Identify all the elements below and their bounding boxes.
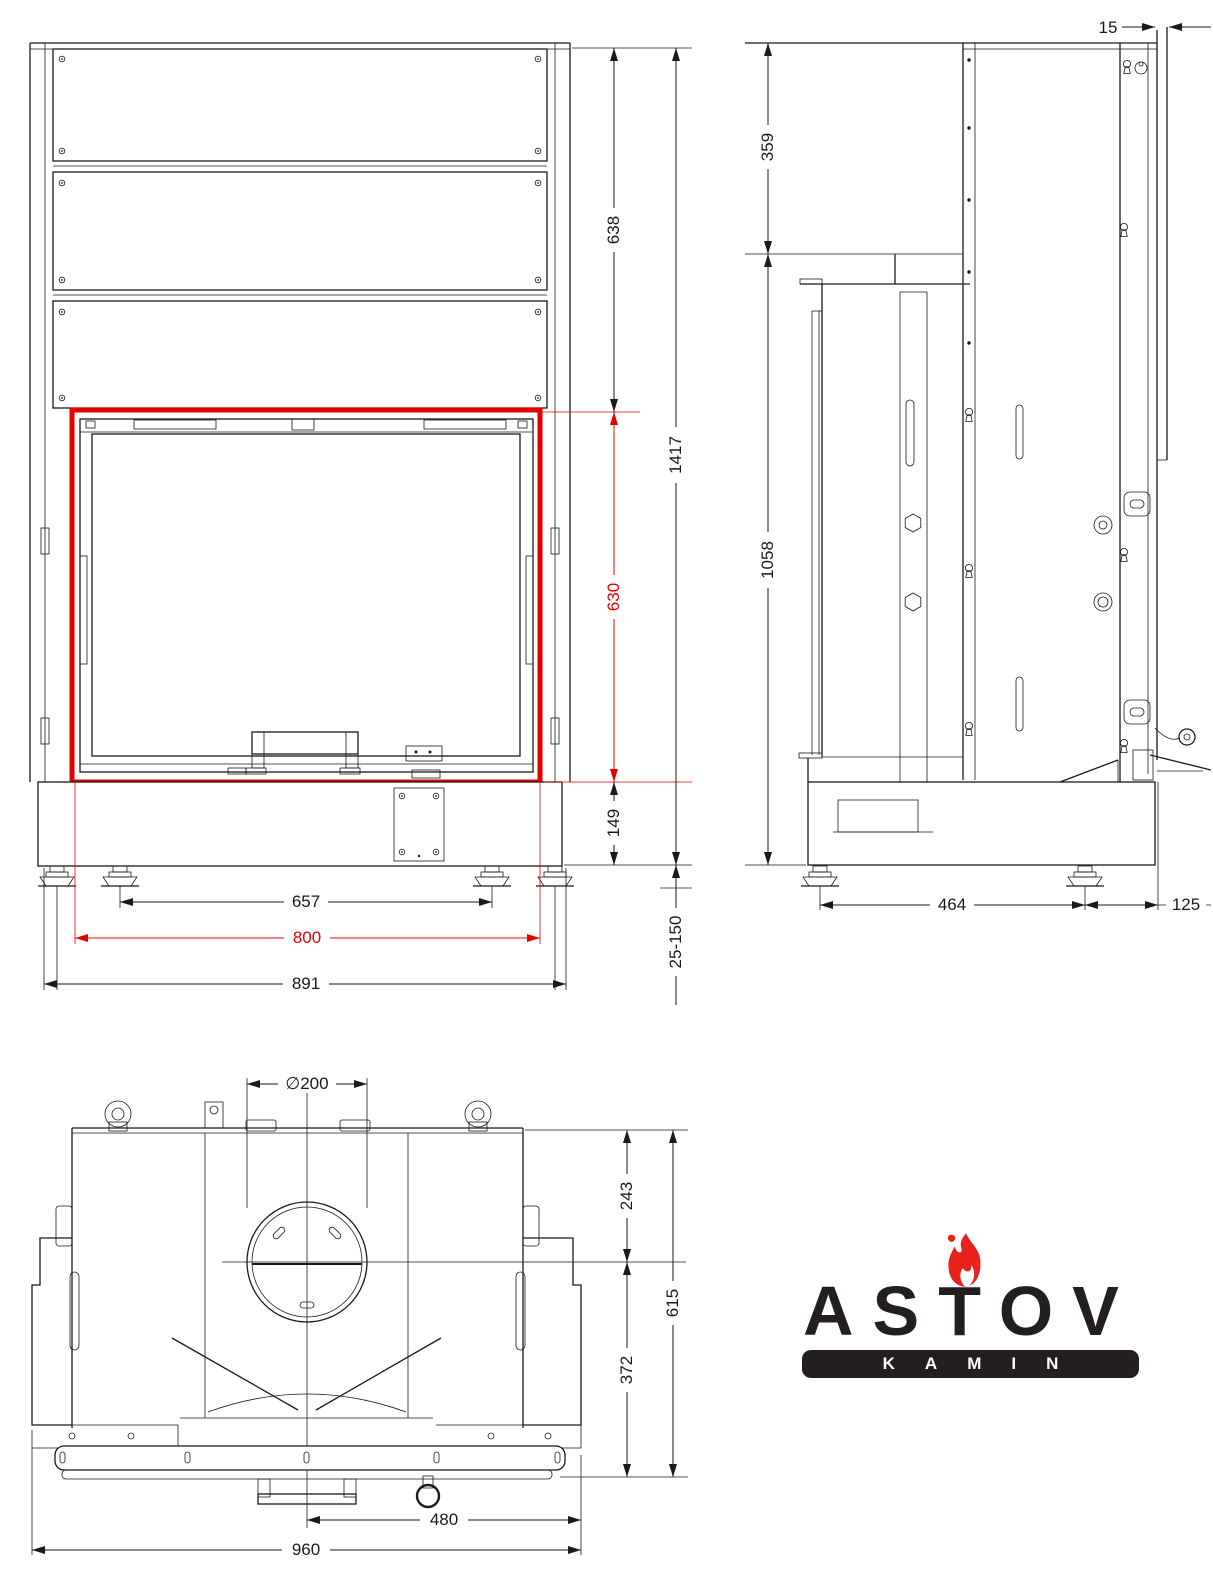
dim-label-rear-to-flue: 243 <box>617 1182 636 1210</box>
dim-opening-width: 800 <box>75 928 540 947</box>
dim-panels-height: 638 <box>604 48 623 412</box>
dim-top-overall-width: 960 <box>32 1540 581 1559</box>
dim-top-section: 359 <box>758 43 777 254</box>
dim-label-body-height: 1058 <box>758 541 777 579</box>
opening-highlight <box>72 410 540 782</box>
dim-label-opening-height: 630 <box>604 583 623 611</box>
dim-label-feet-spacing: 657 <box>292 892 320 911</box>
dim-label-rear-offset: 125 <box>1172 895 1200 914</box>
dim-label-top-section: 359 <box>758 133 777 161</box>
dim-flue-to-front: 372 <box>617 1262 636 1477</box>
damper-lever <box>1150 728 1211 771</box>
dim-rear-offset: 125 <box>1085 895 1211 914</box>
top-view: ∅200 243 372 615 480 <box>32 1074 688 1559</box>
dim-label-front-lip: 15 <box>1099 18 1118 37</box>
dim-label-flue-to-front: 372 <box>617 1356 636 1384</box>
lifting-eye <box>465 1101 491 1131</box>
front-frame-assembly <box>32 1338 581 1507</box>
dim-label-overall-width: 891 <box>292 974 320 993</box>
dim-base-height: 149 <box>604 782 623 865</box>
dim-overall-width: 891 <box>44 974 566 993</box>
adjustable-foot <box>801 866 839 886</box>
front-view: 657 800 891 638 630 <box>30 43 692 1005</box>
dim-center-to-edge: 480 <box>307 1510 581 1529</box>
technical-drawing-page: 657 800 891 638 630 <box>0 0 1213 1573</box>
front-top-panels <box>53 49 547 408</box>
dim-side-feet-spacing: 464 <box>820 895 1085 914</box>
dim-label-base-height: 149 <box>604 809 623 837</box>
dim-label-total-height: 1417 <box>666 436 685 474</box>
dim-rear-to-flue: 243 <box>617 1130 636 1262</box>
side-view: 15 359 1058 464 125 <box>745 18 1211 914</box>
dim-label-center-to-edge: 480 <box>430 1510 458 1529</box>
dim-leg-adjust: 25-150 <box>666 865 685 1005</box>
side-wings <box>32 1238 581 1425</box>
dim-feet-spacing: 657 <box>120 892 492 911</box>
front-base <box>38 782 562 866</box>
adjustable-foot <box>473 866 511 886</box>
adjustable-foot <box>101 866 139 886</box>
door-handle <box>246 732 360 774</box>
side-mid-strip <box>900 292 973 782</box>
dim-total-height: 1417 <box>666 48 685 865</box>
side-base <box>808 750 1155 865</box>
logo-brand-text: ASTOV <box>803 1276 1138 1346</box>
dim-label-opening-width: 800 <box>293 928 321 947</box>
dim-label-overall-depth: 615 <box>663 1289 682 1317</box>
lifting-eye <box>105 1101 131 1131</box>
dim-overall-depth: 615 <box>663 1130 682 1477</box>
dim-opening-height: 630 <box>604 412 623 782</box>
dim-body-height: 1058 <box>758 254 777 865</box>
dim-front-lip: 15 <box>1099 18 1211 37</box>
logo-subtitle-text: KAMIN <box>883 1354 1089 1373</box>
adjustable-foot <box>1066 866 1104 886</box>
dim-label-panels-height: 638 <box>604 216 623 244</box>
dim-flue-diameter: ∅200 <box>247 1074 367 1093</box>
adjustable-foot <box>536 866 574 886</box>
rear-panel <box>1016 27 1167 782</box>
side-front-profile <box>745 254 970 782</box>
firebox-door <box>80 419 533 778</box>
logo-subtitle-bar: KAMIN <box>802 1350 1139 1378</box>
dim-label-flue-diameter: ∅200 <box>285 1074 328 1093</box>
dim-label-top-overall-width: 960 <box>292 1540 320 1559</box>
dim-label-leg-adjust: 25-150 <box>666 916 685 969</box>
dim-label-side-feet-spacing: 464 <box>938 895 966 914</box>
